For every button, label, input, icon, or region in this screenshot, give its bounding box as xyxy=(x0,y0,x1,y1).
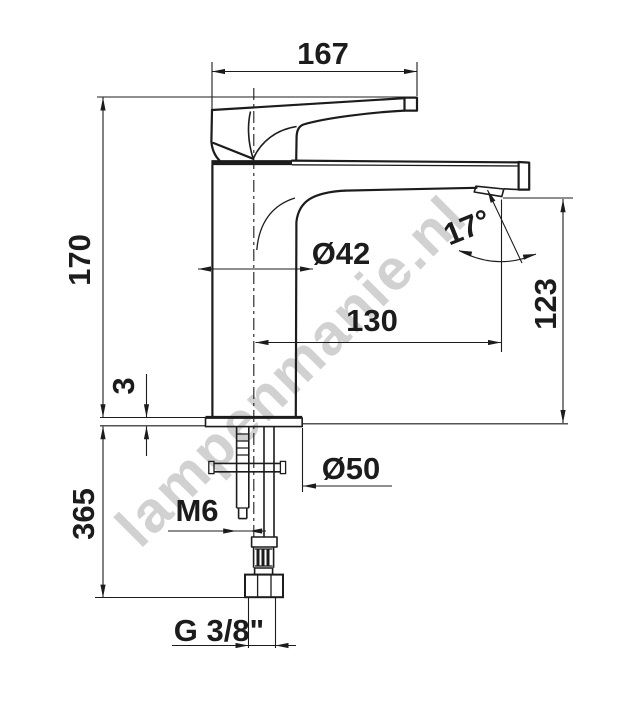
dim-label-lever-length: 167 xyxy=(297,36,349,71)
dim-label-height-170: 170 xyxy=(62,234,97,286)
connection-nut xyxy=(245,575,283,598)
fixing-stud xyxy=(237,427,249,519)
dim-label-plate-diameter: Ø50 xyxy=(322,451,381,486)
dim-label-connection-thread: G 3/8" xyxy=(174,613,265,648)
dim-label-spout-reach: 130 xyxy=(346,303,398,338)
dim-label-stud-thread: M6 xyxy=(175,493,218,528)
faucet-technical-drawing: lampenmanie.nl xyxy=(0,0,630,714)
hose-braid xyxy=(258,550,268,566)
aerator xyxy=(474,186,504,196)
dim-label-outlet-height: 123 xyxy=(528,278,563,330)
lever-handle xyxy=(211,98,417,161)
watermark-text: lampenmanie.nl xyxy=(103,183,479,559)
dim-label-plate-thickness: 3 xyxy=(106,377,141,394)
dim-label-hose-length: 365 xyxy=(66,488,101,540)
faucet-dimension-drawing-page: lampenmanie.nl xyxy=(0,0,630,714)
dim-label-body-diameter: Ø42 xyxy=(312,236,371,271)
